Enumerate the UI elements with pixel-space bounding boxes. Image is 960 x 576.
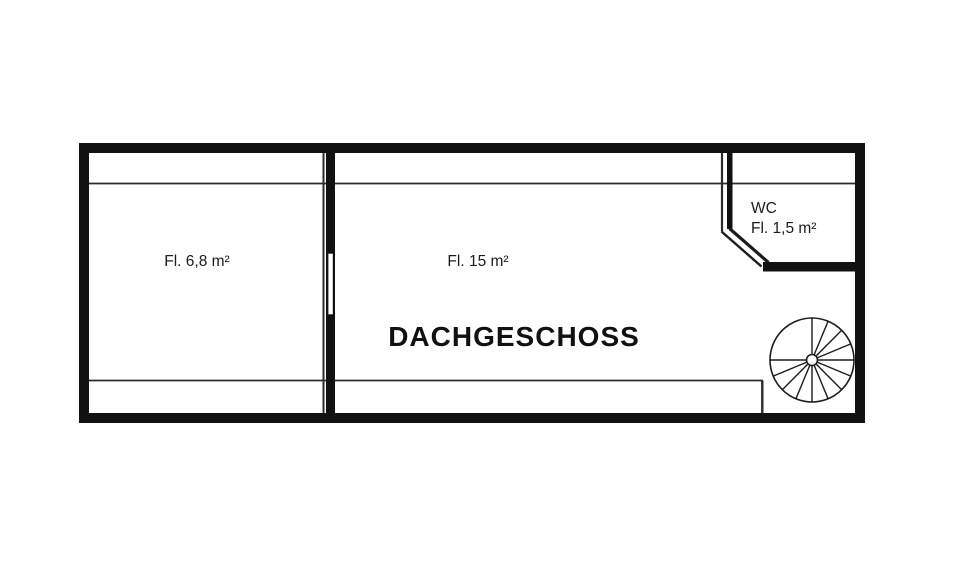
- room-label-main: Fl. 15 m²: [447, 253, 508, 270]
- wc-partition: [722, 153, 856, 272]
- door-opening: [328, 253, 334, 315]
- floorplan-drawing: Fl. 6,8 m² Fl. 15 m² DACHGESCHOSS WC Fl.…: [0, 0, 960, 576]
- wc-label: WC: [751, 200, 777, 217]
- outer-walls: [84, 148, 860, 418]
- spiral-staircase-icon: [770, 318, 854, 402]
- room-label-left: Fl. 6,8 m²: [164, 253, 229, 270]
- labels: Fl. 6,8 m² Fl. 15 m² DACHGESCHOSS WC Fl.…: [164, 200, 816, 352]
- interior-wall: [324, 153, 336, 413]
- floor-title: DACHGESCHOSS: [388, 321, 640, 352]
- wc-area-label: Fl. 1,5 m²: [751, 220, 816, 237]
- floorplan-page: Fl. 6,8 m² Fl. 15 m² DACHGESCHOSS WC Fl.…: [0, 0, 960, 576]
- knee-wall-lines: [89, 184, 855, 414]
